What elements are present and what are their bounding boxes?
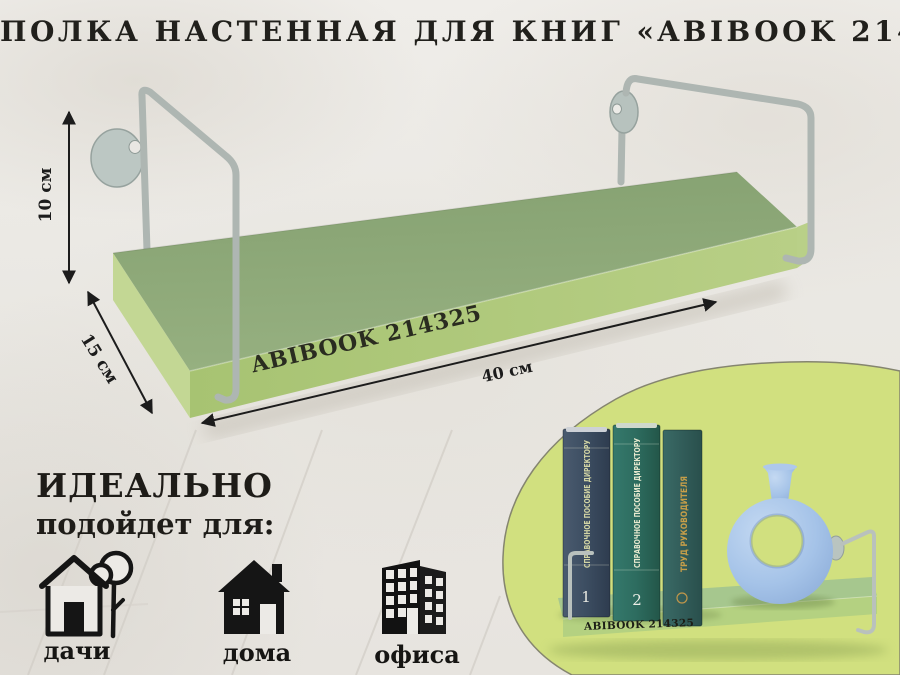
ideal-heading-line1: ИДЕАЛЬНО <box>36 466 273 505</box>
vase-hole <box>751 515 803 567</box>
page-title: ПОЛКА НАСТЕННАЯ ДЛЯ КНИГ «ABIBOOK 214325… <box>0 15 900 48</box>
house-icon <box>216 556 292 640</box>
left-bracket-back <box>91 96 147 250</box>
label-dacha: дачи <box>22 636 132 665</box>
inset-shelf-shadow <box>548 640 888 660</box>
right-bracket-back <box>610 91 638 182</box>
book-2-volume: 2 <box>632 591 642 609</box>
height-dimension-label: 10 см <box>36 163 56 227</box>
office-building-icon <box>376 552 456 640</box>
book-2: СПРАВОЧНОЕ ПОСОБИЕ ДИРЕКТОРУ 2 <box>613 423 660 621</box>
label-ofisa: офиса <box>362 640 472 669</box>
book-3-spine-text: ТРУД РУКОВОДИТЕЛЯ <box>680 476 690 572</box>
label-doma: дома <box>202 638 312 667</box>
book-3: ТРУД РУКОВОДИТЕЛЯ <box>663 430 702 626</box>
book-1-spine-text: СПРАВОЧНОЕ ПОСОБИЕ ДИРЕКТОРУ <box>583 440 592 568</box>
book-2-spine-text: СПРАВОЧНОЕ ПОСОБИЕ ДИРЕКТОРУ <box>633 438 642 568</box>
book-1-volume: 1 <box>581 588 591 606</box>
product-card: СПРАВОЧНОЕ ПОСОБИЕ ДИРЕКТОРУ 1 СПРАВОЧНО… <box>0 0 900 675</box>
house-with-tree-icon <box>36 546 140 644</box>
ideal-heading-line2: подойдет для: <box>36 507 275 541</box>
